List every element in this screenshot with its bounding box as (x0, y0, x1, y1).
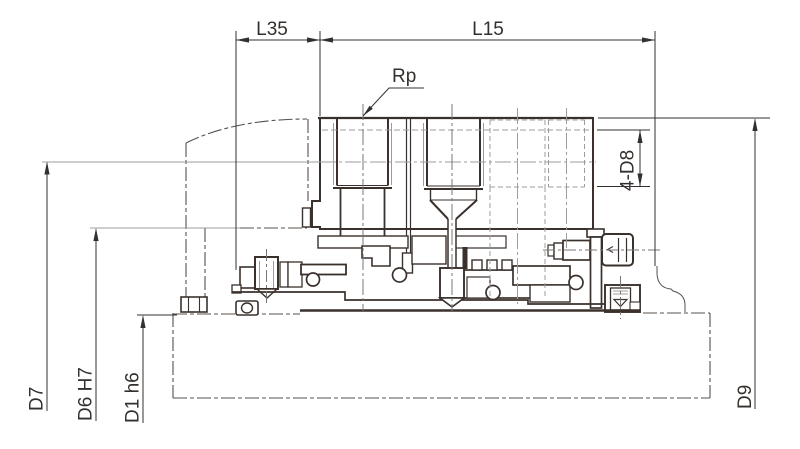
phantom-base-corner-cove (657, 266, 685, 312)
engineering-drawing-canvas: L35 L15 Rp 4-D8 D7 D6 H7 D1 h6 D9 (0, 0, 800, 449)
serration-tooth-3 (502, 260, 512, 270)
dim-label-d7: D7 (27, 387, 48, 411)
arrow-l15-right (642, 37, 655, 42)
thin-post (463, 247, 468, 269)
rp-leader-line (363, 88, 424, 116)
right-step-band (455, 236, 506, 248)
arrow-l15-left (320, 37, 333, 42)
arrow-d1 (140, 315, 145, 328)
dim-label-d9: D9 (735, 385, 756, 409)
arrow-d6 (93, 228, 98, 241)
right-plate-flange (587, 229, 604, 237)
right-slide-step (530, 285, 570, 302)
o-ring-bottom (242, 303, 253, 313)
dim-label-l35: L35 (256, 19, 288, 40)
arrow-l35-right (307, 37, 320, 42)
right-slide-block (513, 266, 570, 285)
arrow-d9 (752, 118, 757, 131)
dim-label-4-d8: 4-D8 (618, 150, 639, 191)
dim-label-d1-h6: D1 h6 (123, 372, 144, 423)
phantom-machine-base (173, 313, 710, 398)
screw-tip-step (554, 243, 563, 259)
left-slide-bar (301, 265, 346, 275)
o-ring-carrier (486, 286, 500, 300)
arrow-d7 (44, 162, 49, 175)
drawing-sheet: L35 L15 Rp 4-D8 D7 D6 H7 D1 h6 D9 (0, 0, 800, 449)
right-plate (591, 237, 602, 308)
dim-label-rp: Rp (392, 66, 416, 87)
o-ring-mid (393, 268, 407, 282)
serration-tooth-1 (472, 260, 482, 270)
o-ring-left (307, 273, 320, 286)
dim-label-l15: L15 (472, 19, 504, 40)
left-spacer-2 (288, 262, 302, 287)
left-end-cap (181, 297, 207, 312)
left-key-tab (303, 208, 311, 227)
left-clamp-step (240, 267, 255, 288)
serration-tooth-2 (487, 260, 497, 270)
mid-z-step-block (362, 246, 390, 266)
dim-label-d6-h7: D6 H7 (76, 367, 97, 421)
arrow-l35-left (236, 37, 249, 42)
o-ring-right (569, 276, 583, 290)
left-spacer-1 (280, 262, 288, 287)
center-housing (412, 236, 446, 264)
arrow-d8-up (637, 130, 642, 143)
